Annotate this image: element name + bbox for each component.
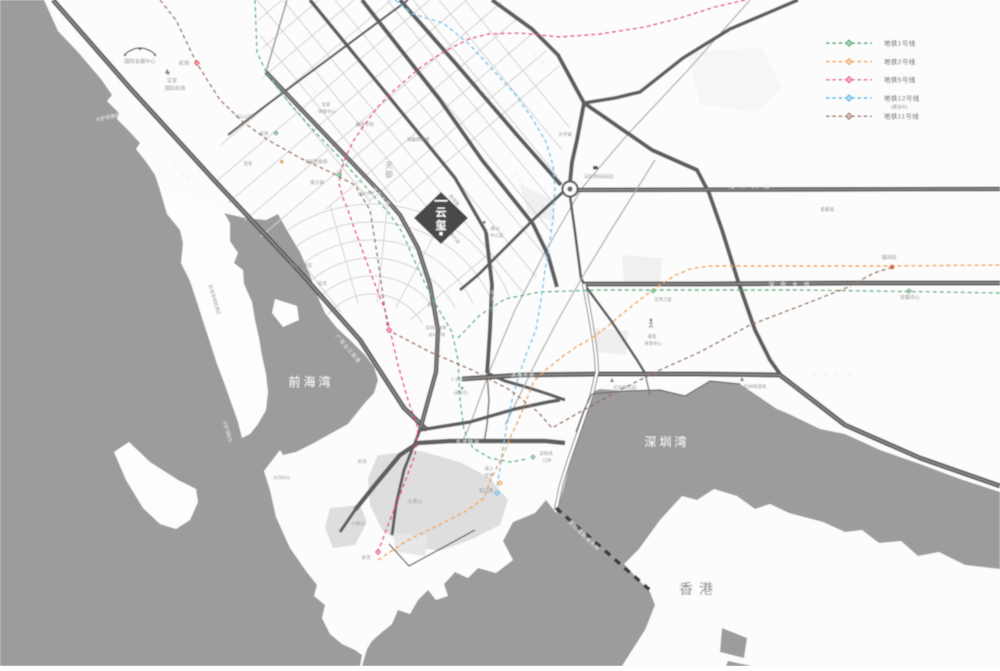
svg-text:后海: 后海 [428, 301, 437, 308]
svg-text:大南山: 大南山 [407, 498, 422, 505]
svg-text:中心区: 中心区 [490, 232, 504, 239]
svg-text:红树林湿地: 红树林湿地 [744, 383, 767, 390]
svg-text:宝安: 宝安 [244, 160, 253, 167]
svg-text:深圳湾科技园区: 深圳湾科技园区 [584, 173, 615, 180]
svg-text:中山公园: 中山公园 [235, 113, 253, 120]
svg-text:福田站: 福田站 [881, 254, 896, 261]
svg-text:口岸: 口岸 [543, 457, 552, 464]
svg-text:东滨隧道: 东滨隧道 [456, 439, 480, 446]
svg-text:地铁11号线: 地铁11号线 [884, 112, 919, 121]
svg-text:地铁5号线: 地铁5号线 [884, 75, 916, 84]
svg-text:人才公园: 人才公园 [450, 376, 467, 383]
svg-text:世界: 世界 [485, 472, 494, 479]
svg-text:运动学校: 运动学校 [429, 331, 447, 338]
svg-text:壹方城: 壹方城 [310, 179, 324, 186]
svg-text:前海合作区: 前海合作区 [290, 262, 313, 269]
svg-text:国际会展中心: 国际会展中心 [124, 57, 155, 65]
svg-text:大学城: 大学城 [558, 131, 572, 138]
svg-text:滨海大道: 滨海大道 [511, 372, 535, 379]
svg-text:国际机场: 国际机场 [165, 84, 186, 92]
svg-text:世界之窗: 世界之窗 [654, 296, 671, 303]
svg-text:赤湾: 赤湾 [362, 554, 371, 561]
svg-text:机场: 机场 [179, 59, 189, 67]
svg-text:深圳湾体育: 深圳湾体育 [426, 324, 447, 331]
svg-text:小南山: 小南山 [351, 520, 365, 527]
svg-text:前湾: 前湾 [358, 458, 367, 465]
svg-text:(建设中): (建设中) [891, 104, 908, 111]
svg-text:天: 天 [385, 161, 393, 170]
svg-text:南山: 南山 [491, 225, 500, 232]
svg-text:妈湾码头: 妈湾码头 [274, 474, 291, 481]
svg-text:地铁12号线: 地铁12号线 [884, 93, 920, 102]
svg-text:宝体: 宝体 [260, 130, 269, 137]
svg-text:海上: 海上 [485, 465, 494, 472]
svg-text:宝安凯旋城: 宝安凯旋城 [305, 158, 328, 165]
svg-text:香蜜湖: 香蜜湖 [820, 206, 834, 213]
svg-text:宝安: 宝安 [167, 76, 177, 84]
svg-text:(建设中): (建设中) [454, 390, 469, 395]
svg-text:北 环 大 道: 北 环 大 道 [728, 182, 771, 190]
svg-text:深 南 大 道: 深 南 大 道 [768, 281, 811, 289]
svg-text:玺: 玺 [436, 218, 447, 232]
svg-text:蛇口港: 蛇口港 [479, 487, 493, 494]
svg-text:海雅缤纷城: 海雅缤纷城 [407, 136, 430, 143]
svg-text:后海大道: 后海大道 [489, 290, 497, 314]
svg-text:宝安: 宝安 [322, 101, 331, 108]
svg-text:深圳湾: 深圳湾 [539, 450, 553, 457]
svg-text:滨 海 大 道: 滨 海 大 道 [810, 371, 853, 379]
svg-text:翻身学校: 翻身学校 [356, 121, 374, 128]
svg-text:深圳湾: 深圳湾 [644, 434, 689, 449]
svg-text:体育中心: 体育中心 [318, 108, 336, 115]
svg-text:春茧: 春茧 [648, 333, 657, 340]
svg-text:会展中心: 会展中心 [900, 294, 920, 301]
svg-text:宝安中学: 宝安中学 [358, 190, 375, 197]
svg-text:地铁2号线: 地铁2号线 [884, 57, 916, 66]
svg-text:桂湾: 桂湾 [318, 280, 327, 287]
svg-text:红树林公园: 红树林公园 [614, 384, 637, 391]
svg-text:前海湾: 前海湾 [288, 374, 333, 389]
svg-text:香港: 香港 [679, 581, 719, 597]
svg-text:云: 云 [436, 206, 447, 219]
svg-text:地铁1号线: 地铁1号线 [884, 38, 916, 47]
svg-text:体育中心: 体育中心 [644, 340, 662, 347]
svg-text:御: 御 [385, 169, 393, 179]
svg-text:太子湾邮轮母港: 太子湾邮轮母港 [464, 577, 499, 584]
